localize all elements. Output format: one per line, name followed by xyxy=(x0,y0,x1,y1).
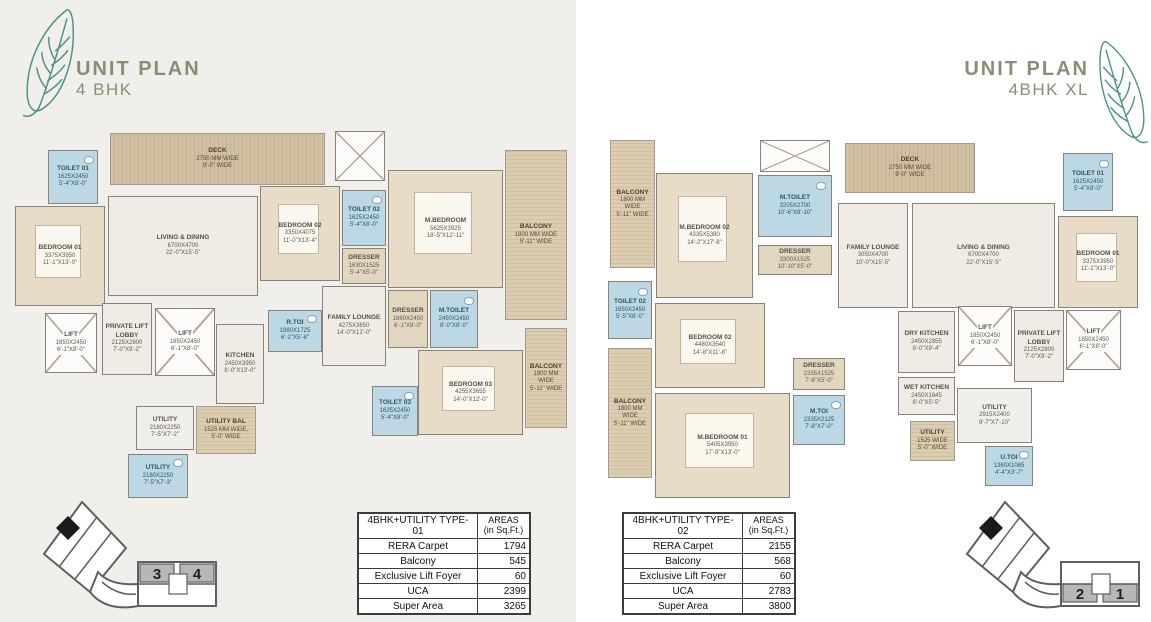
room-label: TOILET 02 xyxy=(348,206,380,214)
room-label: U.TOI xyxy=(1000,454,1017,462)
table-row: Super Area3265 xyxy=(358,599,530,615)
room-deck: DECK2750 MM WIDE9'-0" WIDE xyxy=(845,143,975,193)
room-label: LIFT xyxy=(63,331,79,339)
room-dimension: 10'-6"X8'-10" xyxy=(778,210,813,218)
room-dimension: 6700X4700 xyxy=(168,243,199,251)
room-dimension: 3350X4075 xyxy=(285,230,316,238)
room-m-toilet: M.TOILET3205X270010'-6"X8'-10" xyxy=(758,175,832,237)
room-dimension: 2750 MM WIDE xyxy=(889,165,931,173)
room-label: LIFT xyxy=(177,330,193,338)
room-dimension: 1850X2450 xyxy=(55,340,88,348)
room-label: TOILET 01 xyxy=(57,165,89,173)
area-label: Exclusive Lift Foyer xyxy=(623,569,743,584)
room-dimension: 5'-4"X8'-0" xyxy=(1074,186,1102,194)
room-label: BEDROOM 02 xyxy=(689,334,732,342)
table-row: Super Area3800 xyxy=(623,599,795,615)
room-dimension: 10'-0"X15'-5" xyxy=(856,260,891,268)
page-subtitle: 4BHK XL xyxy=(964,80,1089,100)
room-dimension: 2335X1525 xyxy=(804,371,835,379)
room-dimension: 17'-9"X13'-0" xyxy=(705,450,740,458)
room-label: KITCHEN xyxy=(226,352,255,360)
room-dimension: 7'-5"X7'-2" xyxy=(151,432,179,440)
room-label: LIFT xyxy=(977,324,993,332)
room-dimension: 1800 MM WIDE xyxy=(515,232,557,240)
room-bedroom-03: BEDROOM 034255X365514'-0"X12'-0" xyxy=(418,350,523,435)
room-dimension: 1850X2450 xyxy=(169,339,202,347)
room-dimension: 1800 MM WIDE xyxy=(612,197,653,212)
area-value: 2399 xyxy=(478,584,531,599)
room-label: TOILET 01 xyxy=(1072,170,1104,178)
room-toilet-03: TOILET 031625X24505'-4"X8'-0" xyxy=(372,386,418,436)
room-family-lounge: FAMILY LOUNGE4275X365014'-0"X12'-0" xyxy=(322,286,386,366)
room-dimension: 5'-4"X8'-0" xyxy=(381,415,409,423)
room-label: PRIVATE LIFT LOBBY xyxy=(1016,330,1062,347)
room-dimension: 2335X2125 xyxy=(804,417,835,425)
area-value: 3265 xyxy=(478,599,531,615)
table-header-row: 4BHK+UTILITY TYPE-01 AREAS (in Sq.Ft.) xyxy=(358,513,530,539)
room-dimension: 5'-4"X5'-0" xyxy=(350,270,378,278)
room-dimension: 5'-4"X8'-0" xyxy=(350,222,378,230)
room-label: BALCONY xyxy=(614,398,646,406)
room-dresser: DRESSER1860X24506'-1"X8'-0" xyxy=(388,290,428,348)
room-dimension: 3375X3950 xyxy=(45,253,76,261)
room-m-toi: M.TOI2335X21257'-8"X7'-0" xyxy=(793,395,845,445)
room-shaft xyxy=(335,131,385,181)
area-value: 2783 xyxy=(743,584,796,599)
room-label: BEDROOM 01 xyxy=(39,244,82,252)
area-value: 568 xyxy=(743,554,796,569)
room-dimension: 1850X2450 xyxy=(1077,337,1110,345)
room-dimension: 1630X1525 xyxy=(349,263,380,271)
room-balcony: BALCONY1800 MM WIDE5'-11" WIDE xyxy=(608,348,652,478)
room-dimension: 3050X4700 xyxy=(858,252,889,260)
keyplan-unit-number: 1 xyxy=(1116,586,1124,603)
room-deck: DECK2750 MM WIDE9'-0" WIDE xyxy=(110,133,325,185)
room-m-toilet: M.TOILET2450X24508'-0"X8'-0" xyxy=(430,290,478,348)
keyplan-unit-number: 3 xyxy=(153,566,161,583)
room-label: BEDROOM 03 xyxy=(449,381,492,389)
table-title: 4BHK+UTILITY TYPE-02 xyxy=(623,513,743,539)
keyplan-unit-number: 4 xyxy=(193,566,202,583)
table-row: UCA2783 xyxy=(623,584,795,599)
room-dimension: 5'-11" WIDE xyxy=(616,212,648,220)
room-dimension: 1800 MM WIDE xyxy=(527,371,565,386)
room-label: WET KITCHEN xyxy=(904,384,949,392)
area-label: Exclusive Lift Foyer xyxy=(358,569,478,584)
room-dresser: DRESSER2335X15257'-8"X5'-0" xyxy=(793,358,845,390)
floor-plan-type-02: BALCONY1800 MM WIDE5'-11" WIDEM.BEDROOM … xyxy=(585,128,1143,504)
room-balcony: BALCONY1800 MM WIDE5'-11" WIDE xyxy=(525,328,567,428)
area-label: Super Area xyxy=(623,599,743,615)
plan-header: UNIT PLAN 4 BHK xyxy=(76,58,201,100)
room-dimension: 6'-1"X8'-0" xyxy=(1079,344,1109,352)
room-dimension: 1860X2450 xyxy=(393,316,424,324)
room-dimension: 14'-2"X17'-8" xyxy=(687,240,722,248)
room-dimension: 3205X2700 xyxy=(780,203,811,211)
room-utility: UTILITY2180X22507'-5"X7'-2" xyxy=(136,406,194,450)
room-label: M.BEDROOM 01 xyxy=(697,434,747,442)
room-r-toi: R.TOI1880X17256'-2"X5'-8" xyxy=(268,310,322,352)
room-m-bedroom: M.BEDROOM5625X392518'-5"X12'-11" xyxy=(388,170,503,288)
keyplan-unit-number: 2 xyxy=(1076,586,1084,603)
room-dimension: 2125X2800 xyxy=(112,340,143,348)
room-label: DRESSER xyxy=(779,248,810,256)
table-row: RERA Carpet1794 xyxy=(358,539,530,554)
room-dimension: 2450X3950 xyxy=(225,361,256,369)
area-value: 3800 xyxy=(743,599,796,615)
room-dimension: 10'-10"X5'-0" xyxy=(778,264,813,272)
room-dimension: 8'-0"X5'-5" xyxy=(913,400,941,408)
room-bedroom-01: BEDROOM 013375X395011'-1"X13'-0" xyxy=(15,206,105,306)
room-label: FAMILY LOUNGE xyxy=(328,314,381,322)
table-header-row: 4BHK+UTILITY TYPE-02 AREAS (in Sq.Ft.) xyxy=(623,513,795,539)
room-dimension: 5'-5"X8'-0" xyxy=(616,314,644,322)
area-label: UCA xyxy=(623,584,743,599)
room-family-lounge: FAMILY LOUNGE3050X470010'-0"X15'-5" xyxy=(838,203,908,308)
area-value: 60 xyxy=(743,569,796,584)
room-dimension: 14'-0"X12'-0" xyxy=(453,397,488,405)
room-dresser: DRESSER1630X15255'-4"X5'-0" xyxy=(342,248,386,284)
room-dimension: 14'-0"X12'-0" xyxy=(337,330,372,338)
table-areas-header: AREAS (in Sq.Ft.) xyxy=(743,513,796,539)
room-living-dining: LIVING & DINING6700X470022'-0"X15'-5" xyxy=(912,203,1055,308)
room-bedroom-01: BEDROOM 013375X395011'-1"X13'-0" xyxy=(1058,216,1138,308)
room-private-lift-lobby: PRIVATE LIFT LOBBY2125X28007'-0"X9'-2" xyxy=(102,303,152,375)
room-dimension: 5625X3925 xyxy=(430,226,461,234)
room-dimension: 6'-1"X8'-0" xyxy=(970,340,1000,348)
area-value: 1794 xyxy=(478,539,531,554)
room-bedroom-02: BEDROOM 023350X407511'-0"X13'-4" xyxy=(260,186,340,281)
room-dimension: 5'-0" WIDE xyxy=(918,445,947,453)
room-balcony: BALCONY1800 MM WIDE5'-11" WIDE xyxy=(610,140,655,268)
room-utility: UTILITY2915X24009'-7"X7'-10" xyxy=(957,388,1032,443)
room-shaft xyxy=(760,140,830,172)
room-dimension: 2180X2250 xyxy=(150,425,181,433)
table-row: Balcony568 xyxy=(623,554,795,569)
room-dimension: 1525 MM WIDE, xyxy=(204,427,248,435)
room-dresser: DRESSER3300X152510'-10"X5'-0" xyxy=(758,245,832,275)
room-dimension: 1525 WIDE xyxy=(917,438,948,446)
room-label: BALCONY xyxy=(520,223,552,231)
room-dimension: 4480X3540 xyxy=(695,342,726,350)
room-dimension: 1650X2450 xyxy=(615,307,646,315)
room-label: DECK xyxy=(208,147,226,155)
room-label: M.BEDROOM 02 xyxy=(679,224,729,232)
room-dimension: 6700X4700 xyxy=(968,252,999,260)
areas-table-type-02: 4BHK+UTILITY TYPE-02 AREAS (in Sq.Ft.) R… xyxy=(622,512,796,615)
area-label: Balcony xyxy=(358,554,478,569)
area-value: 60 xyxy=(478,569,531,584)
unit-plan-sheet: UNIT PLAN 4 BHK DECK2750 MM WIDE9'-0" WI… xyxy=(0,0,1151,622)
room-dimension: 8'-0"X13'-0" xyxy=(224,368,255,376)
room-dry-kitchen: DRY KITCHEN2450X28558'-0"X9'-4" xyxy=(898,311,955,373)
room-label: BEDROOM 02 xyxy=(279,222,322,230)
keyplan-wing xyxy=(44,502,126,592)
room-private-lift-lobby: PRIVATE LIFT LOBBY2125X28007'-0"X9'-2" xyxy=(1014,310,1064,382)
room-label: DRY KITCHEN xyxy=(904,330,948,338)
room-label: BALCONY xyxy=(616,189,648,197)
room-label: M.TOILET xyxy=(439,307,469,315)
room-dimension: 7'-8"X5'-0" xyxy=(805,378,833,386)
room-dimension: 22'-0"X15'-5" xyxy=(966,260,1001,268)
room-dimension: 4'-4"X3'-7" xyxy=(995,470,1023,478)
room-dimension: 3375X3950 xyxy=(1083,259,1114,267)
room-lift: LIFT1850X24506'-1"X8'-0" xyxy=(45,313,97,373)
room-label: LIFT xyxy=(1086,328,1102,336)
room-dimension: 2915X2400 xyxy=(979,412,1010,420)
room-label: UTILITY xyxy=(982,404,1007,412)
room-living-dining: LIVING & DINING6700X470022'-0"X15'-5" xyxy=(108,196,258,296)
table-row: UCA2399 xyxy=(358,584,530,599)
room-dimension: 11'-1"X13'-0" xyxy=(1081,266,1115,274)
room-dimension: 8'-0"X8'-0" xyxy=(440,323,468,331)
room-dimension: 5'-0" WIDE xyxy=(211,434,240,442)
room-dimension: 5'-11" WIDE xyxy=(520,239,552,247)
room-label: LIVING & DINING xyxy=(957,244,1010,252)
room-label: LIVING & DINING xyxy=(157,234,210,242)
panel-4bhk: UNIT PLAN 4 BHK DECK2750 MM WIDE9'-0" WI… xyxy=(0,0,576,622)
room-dimension: 6'-2"X5'-8" xyxy=(281,335,309,343)
room-dimension: 5'-11" WIDE xyxy=(530,386,562,394)
room-label: M.BEDROOM xyxy=(425,217,466,225)
room-dimension: 3300X1525 xyxy=(780,257,811,265)
room-dimension: 5'-11" WIDE xyxy=(614,421,646,429)
table-title: 4BHK+UTILITY TYPE-01 xyxy=(358,513,478,539)
area-label: Super Area xyxy=(358,599,478,615)
room-label: UTILITY xyxy=(153,416,178,424)
room-label: R.TOI xyxy=(286,319,303,327)
key-plan: 3 4 xyxy=(22,490,222,620)
room-dimension: 1800 MM WIDE xyxy=(610,406,650,421)
room-dimension: 1625X2450 xyxy=(349,215,380,223)
table-row: RERA Carpet2155 xyxy=(623,539,795,554)
room-balcony: BALCONY1800 MM WIDE5'-11" WIDE xyxy=(505,150,567,320)
room-dimension: 1850X2450 xyxy=(969,333,1002,341)
page-title: UNIT PLAN xyxy=(964,58,1089,80)
room-toilet-02: TOILET 021650X24505'-5"X8'-0" xyxy=(608,281,652,339)
room-dimension: 11'-0"X13'-4" xyxy=(283,238,317,246)
table-areas-header: AREAS (in Sq.Ft.) xyxy=(478,513,531,539)
room-dimension: 1625X2450 xyxy=(380,408,411,416)
area-label: Balcony xyxy=(623,554,743,569)
room-kitchen: KITCHEN2450X39508'-0"X13'-0" xyxy=(216,324,264,404)
area-value: 2155 xyxy=(743,539,796,554)
room-dimension: 18'-5"X12'-11" xyxy=(427,233,464,241)
room-dimension: 2450X1645 xyxy=(911,393,942,401)
areas-table-type-01: 4BHK+UTILITY TYPE-01 AREAS (in Sq.Ft.) R… xyxy=(357,512,531,615)
room-dimension: 22'-0"X15'-5" xyxy=(166,250,201,258)
room-label: FAMILY LOUNGE xyxy=(847,244,900,252)
table-row: Exclusive Lift Foyer60 xyxy=(623,569,795,584)
room-dimension: 7'-8"X7'-0" xyxy=(805,424,833,432)
room-label: DRESSER xyxy=(348,254,379,262)
room-dimension: 14'-8"X11'-8" xyxy=(693,350,727,358)
room-dimension: 2125X2800 xyxy=(1024,347,1055,355)
table-row: Exclusive Lift Foyer60 xyxy=(358,569,530,584)
area-label: RERA Carpet xyxy=(358,539,478,554)
room-dimension: 5'-4"X8'-0" xyxy=(59,181,87,189)
room-dimension: 7'-5"X7'-3" xyxy=(144,480,172,488)
room-label: UTILITY xyxy=(920,429,945,437)
room-label: TOILET 03 xyxy=(379,399,411,407)
room-label: M.TOILET xyxy=(780,194,810,202)
room-dimension: 9'-0" WIDE xyxy=(203,163,232,171)
area-value: 545 xyxy=(478,554,531,569)
plan-header: UNIT PLAN 4BHK XL xyxy=(964,58,1089,100)
room-utility-bal: UTILITY BAL1525 MM WIDE,5'-0" WIDE xyxy=(196,406,256,454)
room-dimension: 7'-0"X9'-2" xyxy=(113,347,141,355)
keyplan-wing xyxy=(967,502,1049,592)
room-dimension: 1625X2450 xyxy=(1073,179,1104,187)
room-lift: LIFT1850X24506'-1"X8'-0" xyxy=(1066,310,1121,370)
room-label: DRESSER xyxy=(392,307,423,315)
room-u-toi: U.TOI1360X10854'-4"X3'-7" xyxy=(985,446,1033,486)
room-toilet-01: TOILET 011625X24505'-4"X8'-0" xyxy=(48,150,98,204)
room-wet-kitchen: WET KITCHEN2450X16458'-0"X5'-5" xyxy=(898,377,955,415)
room-m-bedroom-02: M.BEDROOM 024335X538014'-2"X17'-8" xyxy=(656,173,753,298)
room-dimension: 9'-7"X7'-10" xyxy=(979,420,1010,428)
room-dimension: 8'-0"X9'-4" xyxy=(913,346,941,354)
room-toilet-02: TOILET 021625X24505'-4"X8'-0" xyxy=(342,190,386,246)
room-label: DECK xyxy=(901,156,919,164)
room-toilet-01: TOILET 011625X24505'-4"X8'-0" xyxy=(1063,153,1113,211)
room-dimension: 1360X1085 xyxy=(994,463,1025,471)
room-dimension: 6'-1"X8'-0" xyxy=(170,346,200,354)
room-dimension: 2750 MM WIDE xyxy=(196,156,238,164)
room-label: BALCONY xyxy=(530,363,562,371)
page-title: UNIT PLAN xyxy=(76,58,201,80)
keyplan-core xyxy=(1092,574,1110,594)
room-lift: LIFT1850X24506'-1"X8'-0" xyxy=(155,308,215,376)
room-dimension: 11'-1"X13'-0" xyxy=(43,260,77,268)
room-dimension: 1880X1725 xyxy=(280,328,311,336)
room-dimension: 4335X5380 xyxy=(689,232,720,240)
key-plan: 2 1 xyxy=(945,490,1145,620)
room-label: TOILET 02 xyxy=(614,298,646,306)
room-utility: UTILITY1525 WIDE5'-0" WIDE xyxy=(910,421,955,461)
room-dimension: 6'-1"X8'-0" xyxy=(56,347,86,355)
room-dimension: 7'-0"X9'-2" xyxy=(1025,354,1053,362)
room-dimension: 2450X2855 xyxy=(911,339,942,347)
room-dimension: 4275X3650 xyxy=(339,323,370,331)
room-dimension: 1625X2450 xyxy=(58,174,89,182)
room-label: BEDROOM 01 xyxy=(1077,250,1120,258)
room-dimension: 2450X2450 xyxy=(439,316,470,324)
room-label: M.TOI xyxy=(810,408,828,416)
room-label: UTILITY xyxy=(146,464,171,472)
keyplan-core xyxy=(169,574,187,594)
panel-4bhk-xl: UNIT PLAN 4BHK XL BALCONY1800 MM WIDE5'-… xyxy=(576,0,1151,622)
room-label: UTILITY BAL xyxy=(206,418,246,426)
room-m-bedroom-01: M.BEDROOM 015405X395017'-9"X13'-0" xyxy=(655,393,790,498)
room-label: PRIVATE LIFT LOBBY xyxy=(104,323,150,340)
room-bedroom-02: BEDROOM 024480X354014'-8"X11'-8" xyxy=(655,303,765,388)
room-dimension: 2180X2250 xyxy=(143,473,174,481)
page-subtitle: 4 BHK xyxy=(76,80,201,100)
room-dimension: 5405X3950 xyxy=(707,442,738,450)
room-dimension: 9'-0" WIDE xyxy=(895,172,924,180)
room-label: DRESSER xyxy=(803,362,834,370)
floor-plan-type-01: DECK2750 MM WIDE9'-0" WIDEBALCONY1800 MM… xyxy=(10,128,570,504)
table-row: Balcony545 xyxy=(358,554,530,569)
area-label: UCA xyxy=(358,584,478,599)
room-dimension: 4255X3655 xyxy=(455,389,486,397)
room-dimension: 6'-1"X8'-0" xyxy=(394,323,422,331)
room-lift: LIFT1850X24506'-1"X8'-0" xyxy=(958,306,1012,366)
area-label: RERA Carpet xyxy=(623,539,743,554)
